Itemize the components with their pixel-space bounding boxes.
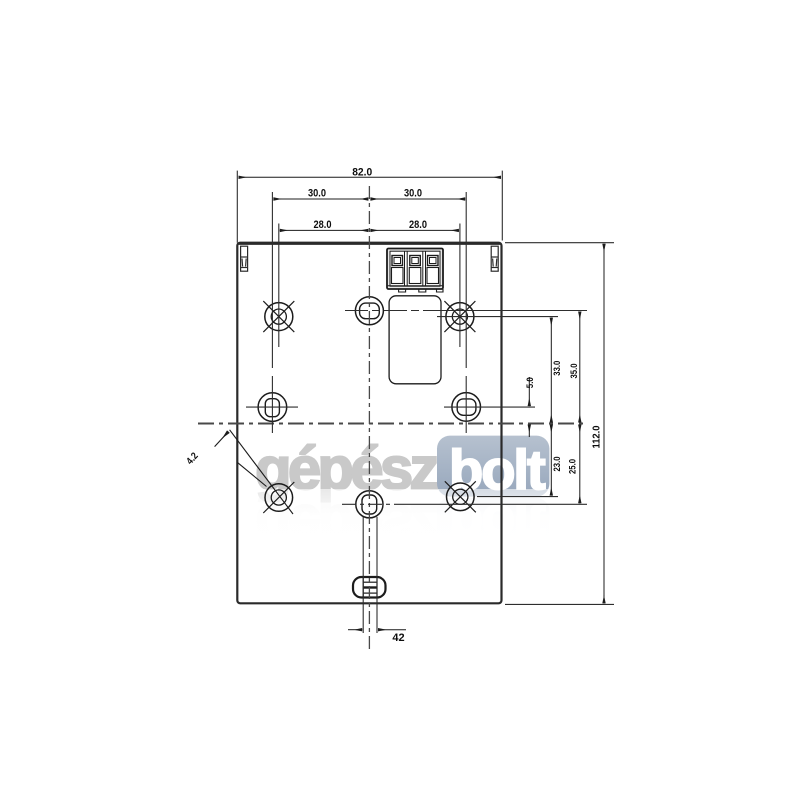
svg-text:23.0: 23.0: [552, 457, 563, 472]
svg-text:35.0: 35.0: [569, 364, 580, 379]
svg-text:112.0: 112.0: [592, 425, 603, 448]
svg-text:30.0: 30.0: [308, 188, 326, 200]
svg-text:5.0: 5.0: [525, 377, 536, 388]
svg-text:82.0: 82.0: [352, 166, 372, 178]
svg-text:42: 42: [392, 632, 404, 644]
svg-text:25.0: 25.0: [568, 459, 579, 474]
svg-text:33.0: 33.0: [552, 361, 563, 376]
svg-text:28.0: 28.0: [314, 219, 332, 231]
svg-text:4.2: 4.2: [185, 450, 201, 467]
svg-text:30.0: 30.0: [404, 188, 422, 200]
svg-text:28.0: 28.0: [409, 219, 427, 231]
